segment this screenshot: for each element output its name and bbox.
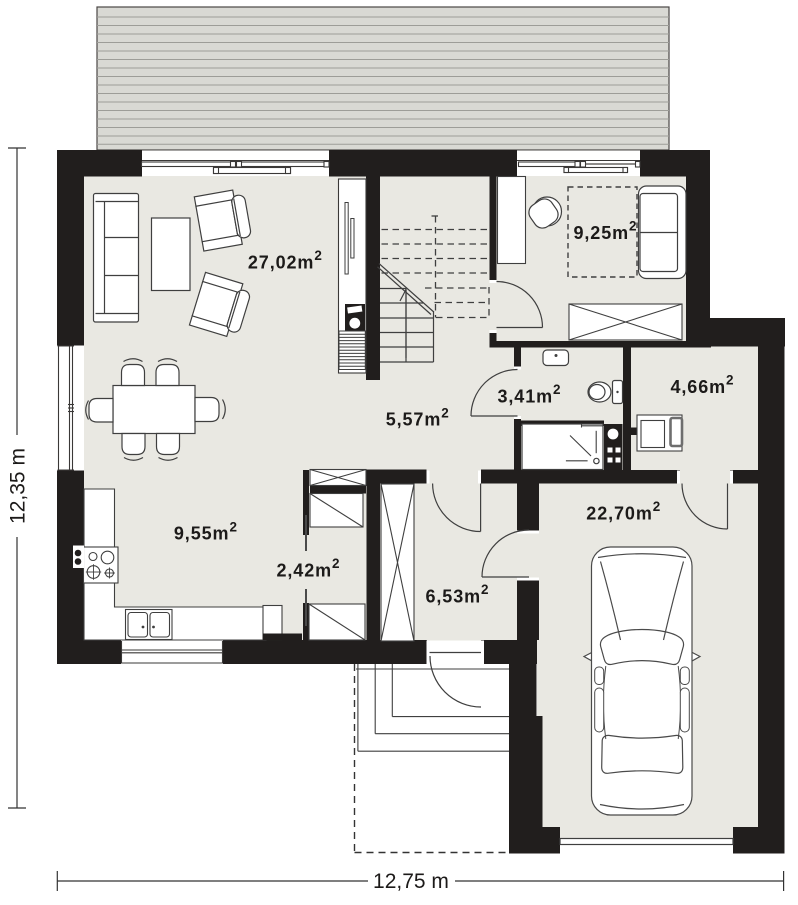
svg-text:3,41m2: 3,41m2 <box>498 382 562 406</box>
svg-text:5,57m2: 5,57m2 <box>386 405 450 429</box>
svg-text:9,25m2: 9,25m2 <box>574 219 638 243</box>
svg-text:9,55m2: 9,55m2 <box>174 519 238 543</box>
svg-text:27,02m2: 27,02m2 <box>248 248 323 272</box>
svg-text:4,66m2: 4,66m2 <box>671 373 735 397</box>
svg-text:2,42m2: 2,42m2 <box>277 556 341 580</box>
svg-text:22,70m2: 22,70m2 <box>586 499 661 523</box>
svg-text:6,53m2: 6,53m2 <box>426 582 490 606</box>
svg-text:12,75 m: 12,75 m <box>373 870 449 893</box>
svg-text:12,35 m: 12,35 m <box>7 448 30 524</box>
